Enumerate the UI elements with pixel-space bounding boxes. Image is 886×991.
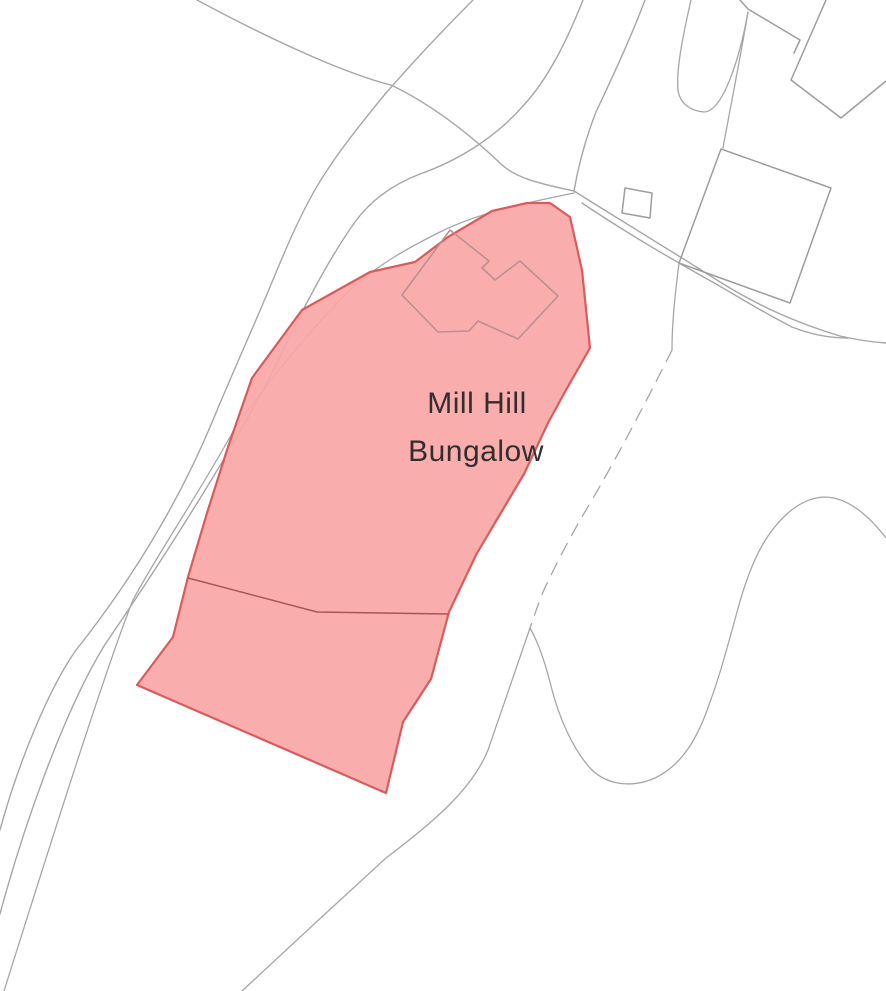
driveway-hairpin — [678, 0, 748, 112]
road-east-lower-edge — [582, 203, 848, 338]
site-label-mill-hill: Mill Hill — [427, 387, 526, 420]
site-boundary-highlight — [137, 203, 590, 793]
site-label-bungalow: Bungalow — [408, 435, 544, 468]
road-northwest-edge — [197, 0, 574, 191]
road-north-edge — [574, 0, 645, 191]
boundary-solid-upper — [672, 263, 679, 350]
building-connector-line — [723, 12, 748, 148]
outbuilding-square — [622, 188, 652, 218]
site-plan-map: Mill HillBungalow — [0, 0, 886, 991]
site-location-plan: Mill HillBungalow — [0, 0, 886, 991]
building-outline-east — [679, 149, 831, 303]
building-outline-top-right-wing — [740, 0, 800, 53]
building-outline-top-right-main — [791, 0, 886, 118]
road-east-upper-edge — [574, 191, 886, 343]
field-enclosure-curve — [530, 497, 886, 784]
